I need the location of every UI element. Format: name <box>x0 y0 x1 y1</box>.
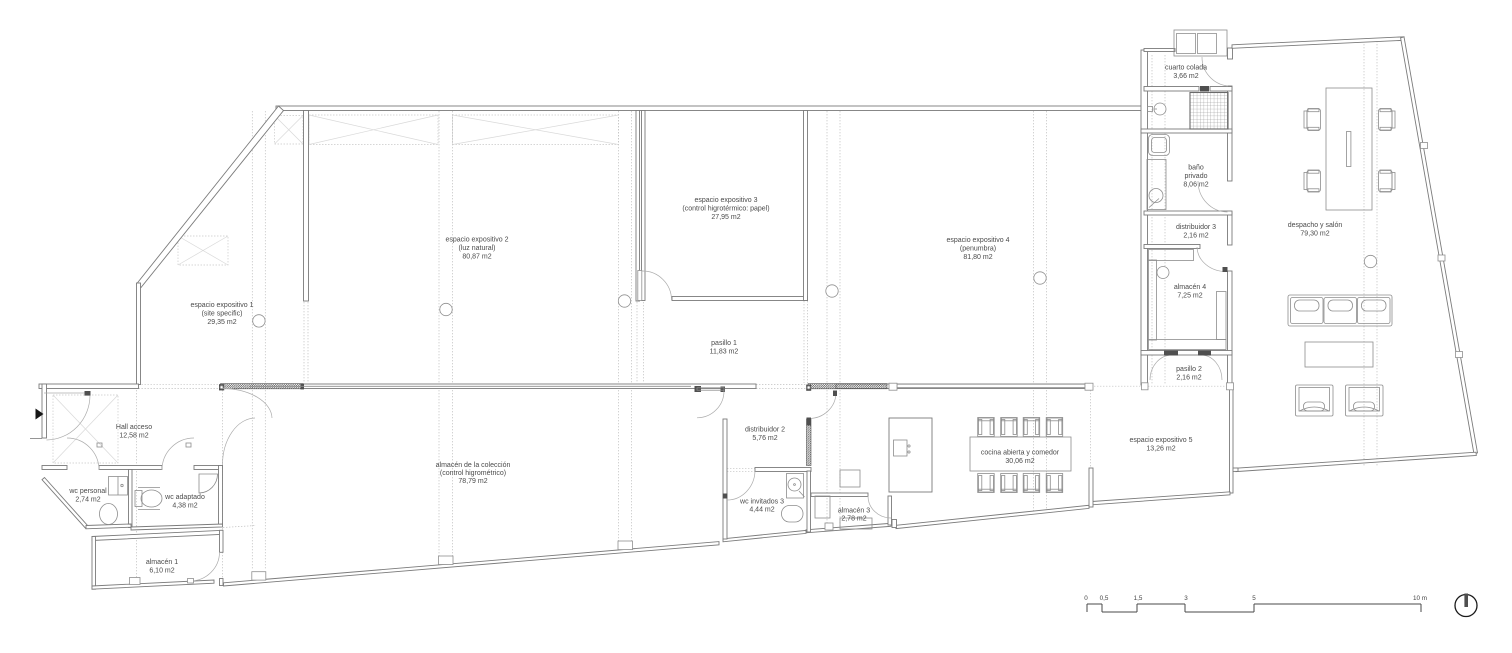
svg-text:almacén 16,10 m2: almacén 16,10 m2 <box>146 559 178 575</box>
svg-text:0,5: 0,5 <box>1100 595 1109 602</box>
svg-text:Hall acceso12,58 m2: Hall acceso12,58 m2 <box>116 424 152 440</box>
svg-text:0: 0 <box>1084 595 1088 602</box>
svg-text:almacén 47,25 m2: almacén 47,25 m2 <box>1174 284 1206 300</box>
svg-text:1,5: 1,5 <box>1134 595 1143 602</box>
svg-text:10 m: 10 m <box>1413 595 1427 602</box>
svg-text:3: 3 <box>1184 595 1188 602</box>
svg-text:pasillo 22,16 m2: pasillo 22,16 m2 <box>1176 366 1202 382</box>
svg-text:almacén 32,78 m2: almacén 32,78 m2 <box>838 508 870 523</box>
svg-text:5: 5 <box>1252 595 1256 602</box>
svg-text:pasillo 111,83 m2: pasillo 111,83 m2 <box>710 340 739 356</box>
